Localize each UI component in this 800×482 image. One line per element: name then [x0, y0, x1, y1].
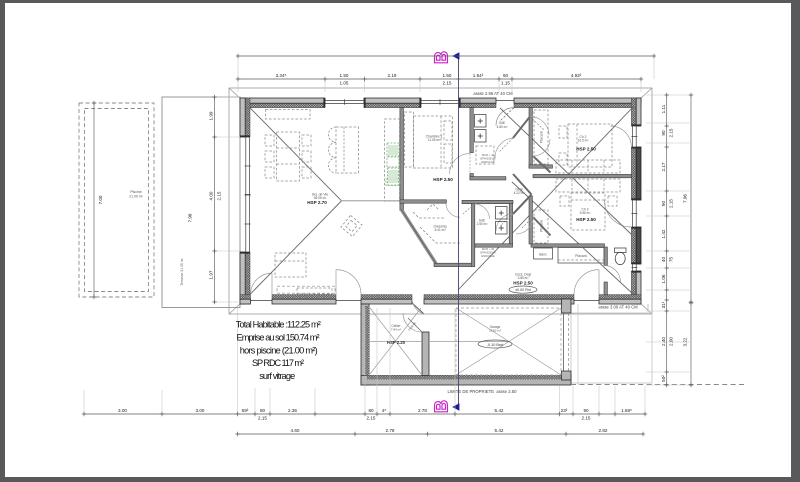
- svg-text:4.80 m²: 4.80 m²: [497, 125, 508, 129]
- svg-text:5.42: 5.42: [495, 428, 504, 433]
- svg-text:HSP 2.50: HSP 2.50: [576, 147, 596, 152]
- svg-text:23²: 23²: [561, 408, 568, 413]
- svg-text:Total Habitable :112.25 m²: Total Habitable :112.25 m²: [236, 320, 321, 330]
- svg-text:LIMITE DE PROPRIETE arase 2.5: LIMITE DE PROPRIETE arase 2.50: [448, 389, 518, 394]
- svg-text:2.78: 2.78: [386, 428, 395, 433]
- svg-text:1.05: 1.05: [340, 81, 349, 86]
- svg-text:1.50: 1.50: [340, 73, 349, 78]
- svg-text:90: 90: [583, 408, 589, 413]
- svg-text:7.00: 7.00: [98, 195, 103, 204]
- svg-text:arase 3.00 AT 40 CM: arase 3.00 AT 40 CM: [598, 305, 638, 310]
- svg-text:1.11: 1.11: [661, 104, 666, 113]
- svg-text:4.22 m²: 4.22 m²: [514, 191, 525, 195]
- svg-text:1.50: 1.50: [443, 73, 452, 78]
- svg-text:EPAISSEUR: EPAISSEUR: [480, 250, 495, 254]
- svg-text:7.84 m²: 7.84 m²: [391, 328, 401, 332]
- svg-text:2.36: 2.36: [288, 408, 297, 413]
- svg-text:90: 90: [661, 201, 666, 207]
- svg-text:1.97: 1.97: [209, 270, 214, 279]
- svg-text:5.42: 5.42: [495, 408, 504, 413]
- svg-text:2.82: 2.82: [599, 428, 608, 433]
- svg-text:7.96: 7.96: [683, 194, 688, 203]
- svg-text:1.68⁵: 1.68⁵: [621, 408, 632, 413]
- svg-text:75: 75: [669, 257, 674, 263]
- svg-text:7.98: 7.98: [188, 213, 193, 222]
- svg-text:hors piscine (21.00 m²): hors piscine (21.00 m²): [240, 346, 318, 356]
- svg-text:3.00: 3.00: [118, 408, 127, 413]
- svg-text:B: B: [432, 400, 452, 413]
- svg-text:4.60: 4.60: [291, 428, 300, 433]
- svg-text:3.00: 3.00: [196, 408, 205, 413]
- svg-text:Placard: Placard: [540, 220, 544, 232]
- svg-text:80: 80: [260, 408, 266, 413]
- svg-text:HSP 2.50: HSP 2.50: [513, 281, 533, 286]
- svg-text:2.17: 2.17: [661, 162, 666, 171]
- svg-text:9.56 m²: 9.56 m²: [580, 211, 591, 215]
- svg-text:2.15: 2.15: [367, 416, 376, 421]
- svg-text:Emprise au sol 150.74 m²: Emprise au sol 150.74 m²: [237, 332, 320, 342]
- svg-text:1.54²: 1.54²: [473, 73, 484, 78]
- svg-text:surf vitrage: surf vitrage: [259, 371, 295, 381]
- svg-text:2.40: 2.40: [661, 337, 666, 346]
- svg-text:MUR + 40: MUR + 40: [482, 153, 495, 157]
- svg-text:2.15: 2.15: [258, 416, 267, 421]
- svg-text:4⁵: 4⁵: [382, 408, 387, 413]
- svg-text:10.5 m²: 10.5 m²: [578, 139, 589, 143]
- svg-text:50²: 50²: [661, 375, 666, 382]
- svg-text:2.00: 2.00: [669, 337, 674, 346]
- svg-text:-0.10 Brut: -0.10 Brut: [487, 343, 505, 347]
- svg-text:Placard: Placard: [575, 254, 587, 258]
- svg-text:arase 2.95 AT 40 CM: arase 2.95 AT 40 CM: [473, 91, 513, 96]
- svg-text:MUR + 40: MUR + 40: [482, 247, 495, 251]
- svg-text:4.93²: 4.93²: [571, 73, 582, 78]
- svg-text:21.00 m²: 21.00 m²: [129, 195, 143, 199]
- svg-text:2.15: 2.15: [669, 199, 674, 208]
- svg-text:2.78: 2.78: [418, 408, 427, 413]
- svg-text:HSP 2.50: HSP 2.50: [576, 217, 596, 222]
- svg-text:3.34⁵: 3.34⁵: [276, 73, 287, 78]
- svg-text:4.00: 4.00: [209, 191, 214, 200]
- svg-text:Banc: Banc: [539, 253, 547, 257]
- svg-text:±0.00 Fini: ±0.00 Fini: [515, 288, 531, 292]
- svg-text:B: B: [432, 51, 452, 64]
- svg-text:2.15: 2.15: [443, 81, 452, 86]
- svg-text:40: 40: [661, 257, 666, 263]
- svg-text:HSP 2.70: HSP 2.70: [307, 200, 327, 205]
- svg-text:1.06: 1.06: [661, 274, 666, 283]
- svg-text:SP RDC 117 m²: SP RDC 117 m²: [252, 358, 304, 368]
- svg-text:59²: 59²: [242, 408, 249, 413]
- svg-text:1.99: 1.99: [209, 111, 214, 120]
- svg-text:11.05 m²: 11.05 m²: [428, 138, 440, 142]
- svg-text:5.41 m²: 5.41 m²: [435, 228, 446, 232]
- svg-text:1.15: 1.15: [501, 81, 510, 86]
- svg-text:2.15: 2.15: [216, 191, 221, 200]
- svg-text:90: 90: [661, 130, 666, 136]
- svg-text:HSP 2.50: HSP 2.50: [433, 177, 453, 182]
- svg-text:31¹: 31¹: [661, 301, 666, 308]
- svg-text:80: 80: [368, 408, 374, 413]
- svg-text:60: 60: [503, 73, 509, 78]
- svg-text:Piscine: Piscine: [130, 190, 142, 194]
- svg-text:19.82 m²: 19.82 m²: [489, 329, 501, 333]
- svg-text:ENDUCHE: ENDUCHE: [481, 254, 494, 258]
- svg-text:1.42: 1.42: [661, 229, 666, 238]
- svg-text:2.50 m²: 2.50 m²: [477, 222, 488, 226]
- svg-text:2.15: 2.15: [669, 128, 674, 137]
- svg-text:2.19: 2.19: [388, 73, 397, 78]
- svg-text:Terrasse 31.35 m²: Terrasse 31.35 m²: [180, 257, 184, 285]
- svg-text:Placard: Placard: [540, 131, 544, 143]
- svg-text:2.15: 2.15: [582, 416, 591, 421]
- svg-text:ENDUCHE: ENDUCHE: [481, 160, 494, 164]
- svg-text:3.22: 3.22: [683, 337, 688, 346]
- svg-text:EPAISSEUR: EPAISSEUR: [480, 156, 495, 160]
- svg-text:3.85 m²: 3.85 m²: [518, 276, 529, 280]
